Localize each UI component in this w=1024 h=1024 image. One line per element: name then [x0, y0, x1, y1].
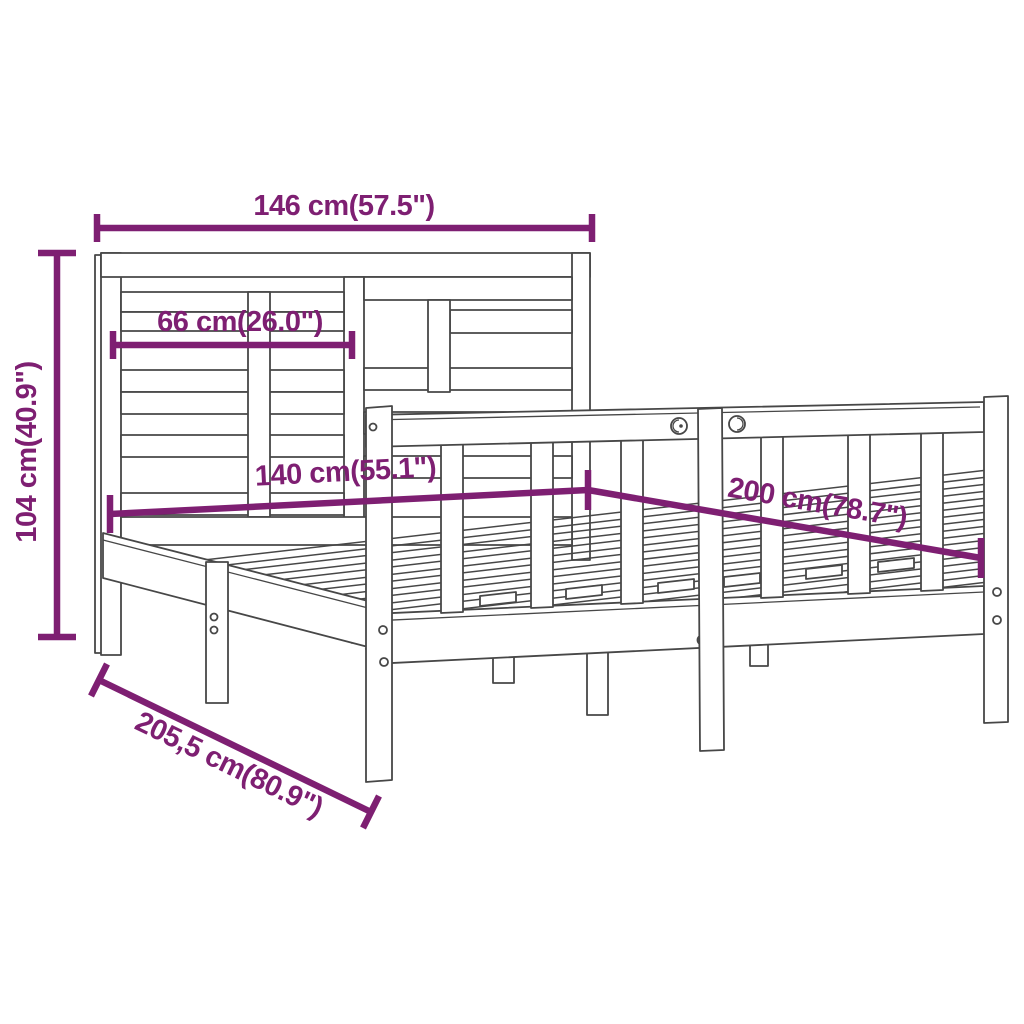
baluster: [761, 435, 783, 598]
slat-cleat: [724, 573, 760, 587]
right-post: [984, 396, 1008, 723]
baluster: [921, 430, 943, 591]
dimension-label: 66 cm(26.0"): [157, 306, 323, 338]
slat-cleat: [658, 579, 694, 593]
front-left-leg: [206, 562, 228, 703]
baluster: [441, 444, 463, 613]
dimension-total-length: 205,5 cm(80.9"): [91, 664, 379, 828]
screw-icon: [993, 588, 1001, 596]
screw-icon: [993, 616, 1001, 624]
mid-front-post: [698, 408, 724, 751]
dimension-line: [99, 680, 371, 812]
dimension-label: 146 cm(57.5"): [253, 190, 434, 222]
headboard-bottom-rail: [121, 517, 572, 545]
screw-icon: [211, 614, 218, 621]
railing-top-rail: [366, 402, 984, 447]
baluster: [531, 441, 553, 608]
screw-icon: [380, 658, 388, 666]
dimension-label: 104 cm(40.9"): [11, 361, 43, 542]
dimension-headboard-height: 104 cm(40.9"): [11, 253, 76, 637]
baluster: [621, 439, 643, 604]
headboard-slat: [121, 392, 344, 414]
headboard-right-subpost: [428, 300, 450, 392]
headboard-slat: [121, 370, 344, 392]
screw-icon: [379, 626, 387, 634]
left-side-rail: [103, 533, 372, 648]
headboard-slat: [364, 277, 572, 300]
headboard-right-post: [572, 253, 590, 560]
bed-frame-dimension-diagram: 146 cm(57.5") 66 cm(26.0") 104 cm(40.9")…: [0, 0, 1024, 1024]
headboard-slat: [364, 368, 572, 390]
headboard-slat: [450, 310, 572, 333]
dimension-label: 205,5 cm(80.9"): [130, 706, 328, 824]
diagram-canvas: 146 cm(57.5") 66 cm(26.0") 104 cm(40.9")…: [0, 0, 1024, 1024]
slat-cleat: [566, 585, 602, 599]
cam-lock-dot: [679, 424, 683, 428]
headboard-top-rail: [101, 253, 590, 277]
headboard-left-post: [101, 253, 121, 655]
dimension-headboard-width: 146 cm(57.5"): [97, 190, 592, 242]
headboard-slat: [121, 435, 344, 457]
screw-icon: [211, 627, 218, 634]
screw-icon: [370, 424, 377, 431]
